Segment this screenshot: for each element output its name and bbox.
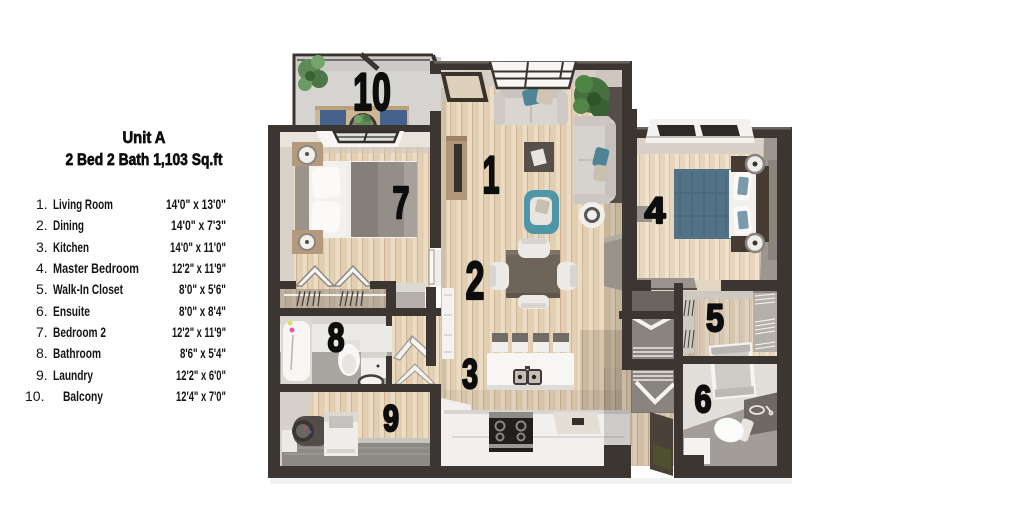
svg-text:3: 3 — [462, 350, 478, 397]
svg-text:8'0" x 5'6": 8'0" x 5'6" — [179, 281, 226, 297]
svg-text:4: 4 — [645, 190, 666, 231]
svg-text:8'0" x 8'4": 8'0" x 8'4" — [179, 303, 226, 319]
svg-text:Kitchen: Kitchen — [53, 239, 89, 255]
svg-text:10.: 10. — [25, 388, 44, 404]
svg-text:4.: 4. — [36, 260, 48, 276]
svg-text:Ensuite: Ensuite — [53, 303, 90, 319]
svg-text:12'2" x 11'9": 12'2" x 11'9" — [172, 324, 226, 340]
svg-text:Balcony: Balcony — [63, 388, 103, 404]
svg-text:3.: 3. — [36, 239, 48, 255]
svg-text:Laundry: Laundry — [53, 367, 93, 383]
svg-text:Master Bedroom: Master Bedroom — [53, 260, 139, 276]
svg-text:12'2" x 6'0": 12'2" x 6'0" — [176, 367, 226, 383]
svg-text:12'4" x 7'0": 12'4" x 7'0" — [176, 388, 226, 404]
svg-text:Walk-In Closet: Walk-In Closet — [53, 281, 123, 297]
svg-text:9: 9 — [383, 398, 399, 439]
svg-text:10: 10 — [353, 63, 391, 122]
svg-text:14'0" x 11'0": 14'0" x 11'0" — [170, 239, 226, 255]
svg-text:6: 6 — [695, 379, 712, 421]
svg-text:5.: 5. — [36, 281, 48, 297]
svg-text:Bedroom 2: Bedroom 2 — [53, 324, 106, 340]
svg-text:1.: 1. — [36, 196, 48, 212]
svg-text:8.: 8. — [36, 345, 48, 361]
svg-text:14'0" x 7'3": 14'0" x 7'3" — [171, 217, 226, 233]
svg-text:2: 2 — [466, 251, 485, 311]
svg-text:Dining: Dining — [53, 217, 84, 233]
svg-text:1: 1 — [483, 146, 500, 205]
svg-text:14'0" x 13'0": 14'0" x 13'0" — [166, 196, 226, 212]
svg-text:8'6" x 5'4": 8'6" x 5'4" — [180, 345, 226, 361]
svg-text:2.: 2. — [36, 217, 48, 233]
svg-text:12'2" x 11'9": 12'2" x 11'9" — [172, 260, 226, 276]
svg-text:7: 7 — [393, 177, 410, 228]
svg-text:Unit A: Unit A — [123, 128, 166, 147]
svg-text:5: 5 — [706, 297, 724, 340]
svg-text:7.: 7. — [36, 324, 48, 340]
svg-text:9.: 9. — [36, 367, 48, 383]
svg-text:8: 8 — [328, 316, 345, 360]
svg-text:Living Room: Living Room — [53, 196, 113, 212]
svg-text:2 Bed 2 Bath 1,103 Sq.ft: 2 Bed 2 Bath 1,103 Sq.ft — [66, 150, 223, 169]
svg-text:Bathroom: Bathroom — [53, 345, 101, 361]
svg-text:6.: 6. — [36, 303, 48, 319]
